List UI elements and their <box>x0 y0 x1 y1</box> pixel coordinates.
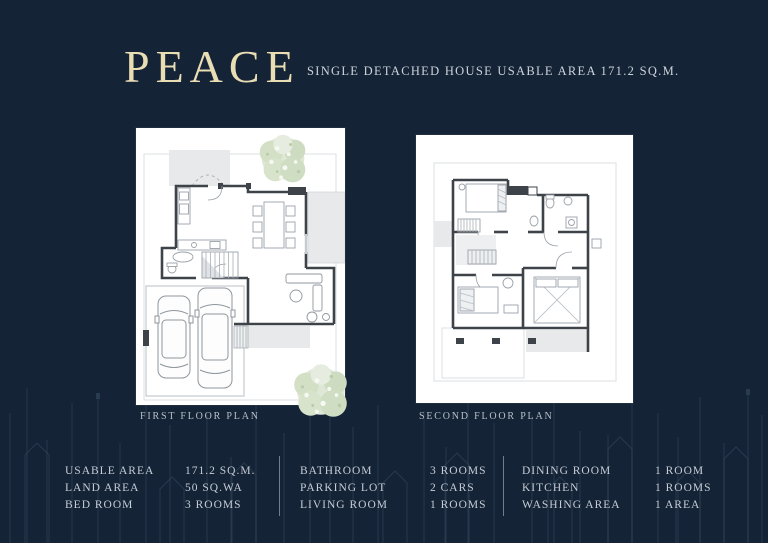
spec-labels-group2: BATHROOM PARKING LOT LIVING ROOM <box>300 463 388 514</box>
tree-icon <box>288 358 354 424</box>
brochure-page: PEACE SINGLE DETACHED HOUSE USABLE AREA … <box>0 0 768 543</box>
spec-value: 1 ROOMS <box>655 480 712 497</box>
spec-value: 171.2 SQ.M. <box>185 463 255 480</box>
spec-label: WASHING AREA <box>522 497 621 514</box>
bed-icon <box>534 277 580 323</box>
bathroom-fixtures <box>167 252 193 273</box>
spec-label: LIVING ROOM <box>300 497 388 514</box>
spec-label: USABLE AREA <box>65 463 154 480</box>
car-icon <box>155 296 193 378</box>
spec-value: 1 ROOM <box>655 463 712 480</box>
lower-roof-outline <box>442 328 524 378</box>
car-icon <box>195 288 235 388</box>
spec-label: DINING ROOM <box>522 463 621 480</box>
spec-label: BATHROOM <box>300 463 388 480</box>
second-floor-plan <box>416 135 633 403</box>
spec-labels-group1: USABLE AREA LAND AREA BED ROOM <box>65 463 154 514</box>
spec-value: 1 ROOMS <box>430 497 487 514</box>
second-floor-plan-drawing <box>416 135 633 403</box>
patio-area <box>169 150 230 186</box>
dining-table-icon <box>253 202 295 248</box>
spec-label: LAND AREA <box>65 480 154 497</box>
spec-label: PARKING LOT <box>300 480 388 497</box>
spec-values-group1: 171.2 SQ.M. 50 SQ.WA 3 ROOMS <box>185 463 255 514</box>
spec-value: 2 CARS <box>430 480 487 497</box>
spec-labels-group3: DINING ROOM KITCHEN WASHING AREA <box>522 463 621 514</box>
spec-label: BED ROOM <box>65 497 154 514</box>
tree-icon <box>252 129 314 191</box>
first-floor-plan-caption: FIRST FLOOR PLAN <box>140 411 260 422</box>
closet-block <box>508 186 528 195</box>
spec-value: 50 SQ.WA <box>185 480 255 497</box>
kitchen-counter <box>178 188 226 250</box>
page-title: PEACE <box>124 44 300 90</box>
porch-area <box>308 192 345 263</box>
page-subtitle: SINGLE DETACHED HOUSE USABLE AREA 171.2 … <box>307 64 679 79</box>
entry-steps-icon <box>234 326 248 348</box>
bathroom-fixtures <box>530 195 601 248</box>
spec-divider <box>279 456 280 516</box>
stairs-icon <box>456 219 496 265</box>
spec-values-group2: 3 ROOMS 2 CARS 1 ROOMS <box>430 463 487 514</box>
second-floor-plan-caption: SECOND FLOOR PLAN <box>419 411 554 422</box>
bed-icon <box>458 278 518 313</box>
walkway-area <box>248 326 310 348</box>
spec-divider <box>503 456 504 516</box>
spec-value: 3 ROOMS <box>430 463 487 480</box>
roof-area <box>434 221 453 247</box>
spec-values-group3: 1 ROOM 1 ROOMS 1 AREA <box>655 463 712 514</box>
spec-value: 1 AREA <box>655 497 712 514</box>
spec-value: 3 ROOMS <box>185 497 255 514</box>
spec-label: KITCHEN <box>522 480 621 497</box>
bed-icon <box>459 184 506 212</box>
sofa-icon <box>286 274 330 322</box>
